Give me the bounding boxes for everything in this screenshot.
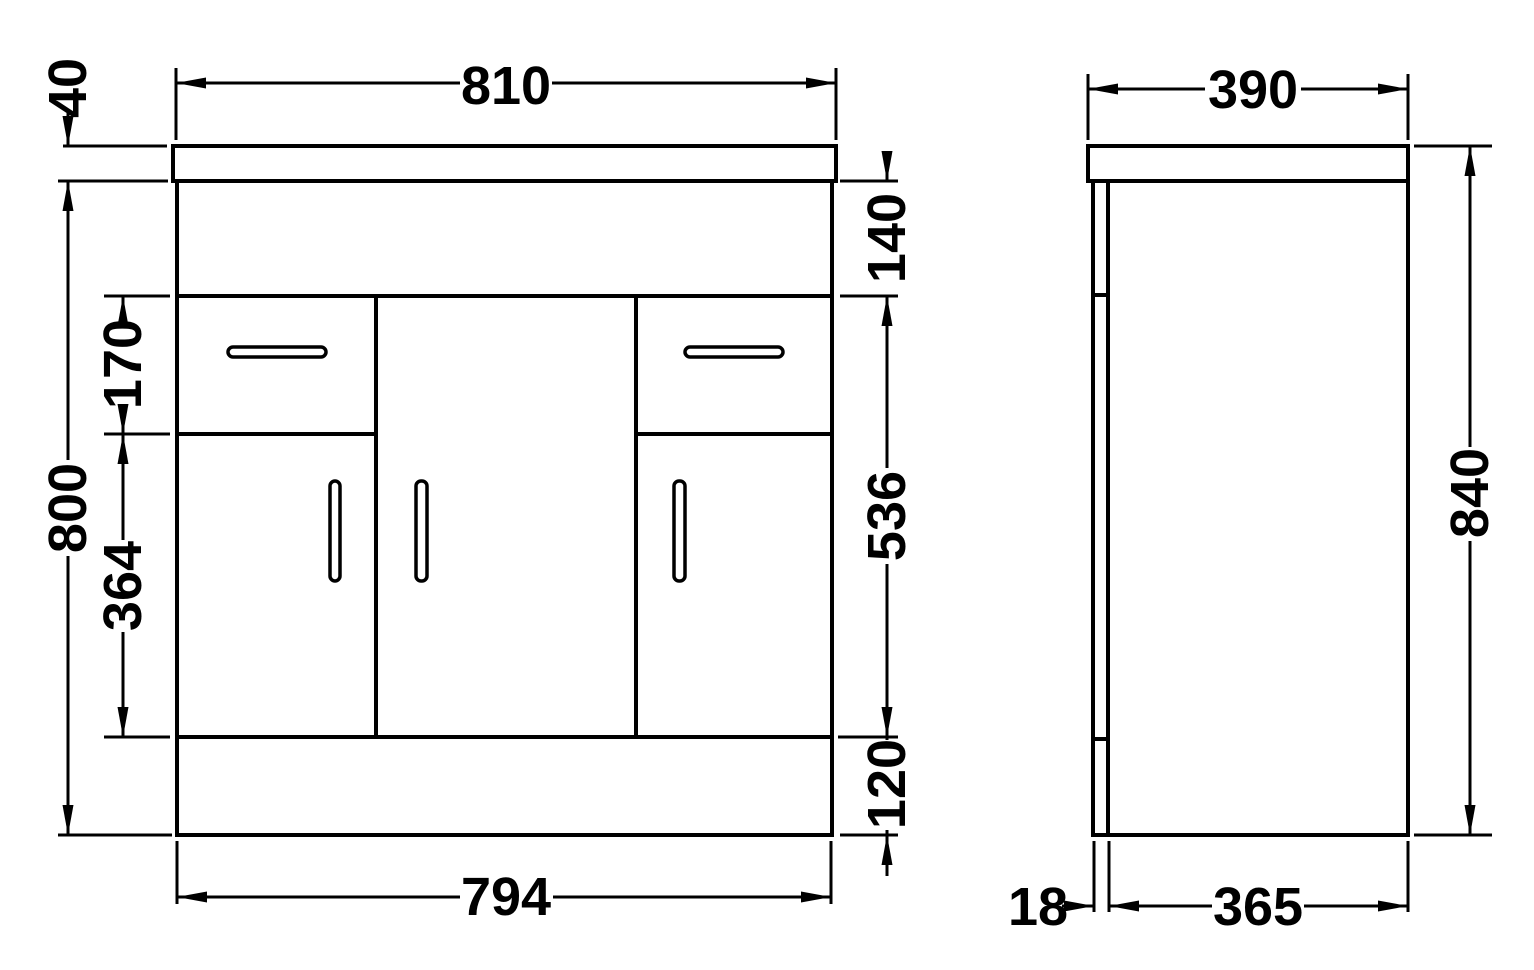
dim-794-arrow-left: [177, 892, 207, 903]
dim-390-arrow-right: [1378, 84, 1408, 95]
left-drawer-handle: [228, 347, 326, 357]
dim-840-arrow-bottom: [1465, 805, 1476, 835]
center-door-handle: [416, 481, 427, 581]
dim-536-arrow-bottom: [882, 707, 893, 737]
right-drawer-handle: [685, 347, 783, 357]
side-dimensions: 390 840 18 365: [1008, 60, 1500, 937]
dim-390-arrow-left: [1088, 84, 1118, 95]
dim-18-arrow: [1064, 901, 1094, 912]
side-carcass-body: [1108, 181, 1408, 835]
technical-drawing-canvas: 810 40 800 170: [0, 0, 1534, 970]
dim-365-arrow-left: [1109, 901, 1139, 912]
dim-140-arrow-top: [882, 151, 893, 181]
front-view: [173, 146, 836, 835]
dim-label-170: 170: [93, 319, 153, 409]
dim-label-140: 140: [857, 193, 917, 283]
dim-390: 390: [1088, 60, 1408, 140]
dim-label-794: 794: [461, 867, 551, 927]
dim-536: 536: [838, 296, 917, 737]
dim-label-364: 364: [93, 541, 153, 631]
dim-label-810: 810: [461, 56, 551, 116]
dim-365: 365: [1109, 841, 1408, 937]
dim-840: 840: [1414, 146, 1500, 835]
dim-800-arrow-bottom: [63, 805, 74, 835]
dim-label-120: 120: [857, 739, 917, 829]
right-door-handle: [674, 481, 685, 581]
front-worktop: [173, 146, 836, 181]
side-view: [1088, 146, 1408, 835]
dim-140: 140: [840, 151, 917, 330]
left-door-handle: [330, 481, 340, 581]
dim-794-arrow-right: [801, 892, 831, 903]
dim-364-arrow-top: [118, 434, 129, 464]
dim-label-536: 536: [857, 471, 917, 561]
dim-170: 170: [93, 296, 170, 434]
dim-18: 18: [1008, 841, 1109, 937]
front-dimensions: 810 40 800 170: [38, 56, 917, 927]
dim-800-arrow-top: [63, 181, 74, 211]
dim-40: 40: [38, 58, 168, 181]
dim-label-840: 840: [1440, 448, 1500, 538]
dim-120: 120: [840, 737, 917, 876]
side-door-front-strip: [1093, 181, 1108, 835]
dim-40-arrow: [63, 116, 74, 146]
dim-365-arrow-right: [1378, 901, 1408, 912]
dim-810-arrow-left: [176, 78, 206, 89]
dim-364-arrow-bottom: [118, 707, 129, 737]
dim-label-18: 18: [1008, 877, 1068, 937]
vanity-unit-drawing: 810 40 800 170: [0, 0, 1534, 970]
dim-794: 794: [177, 841, 831, 927]
side-worktop: [1088, 146, 1408, 181]
dim-label-390: 390: [1208, 60, 1298, 120]
dim-364: 364: [93, 434, 170, 737]
dim-120-arrow-bottom: [882, 835, 893, 865]
dim-label-365: 365: [1213, 877, 1303, 937]
dim-810-arrow-right: [806, 78, 836, 89]
dim-label-800: 800: [38, 463, 98, 553]
dim-840-arrow-top: [1465, 146, 1476, 176]
dim-810: 810: [176, 56, 836, 140]
dim-label-40: 40: [38, 58, 98, 118]
